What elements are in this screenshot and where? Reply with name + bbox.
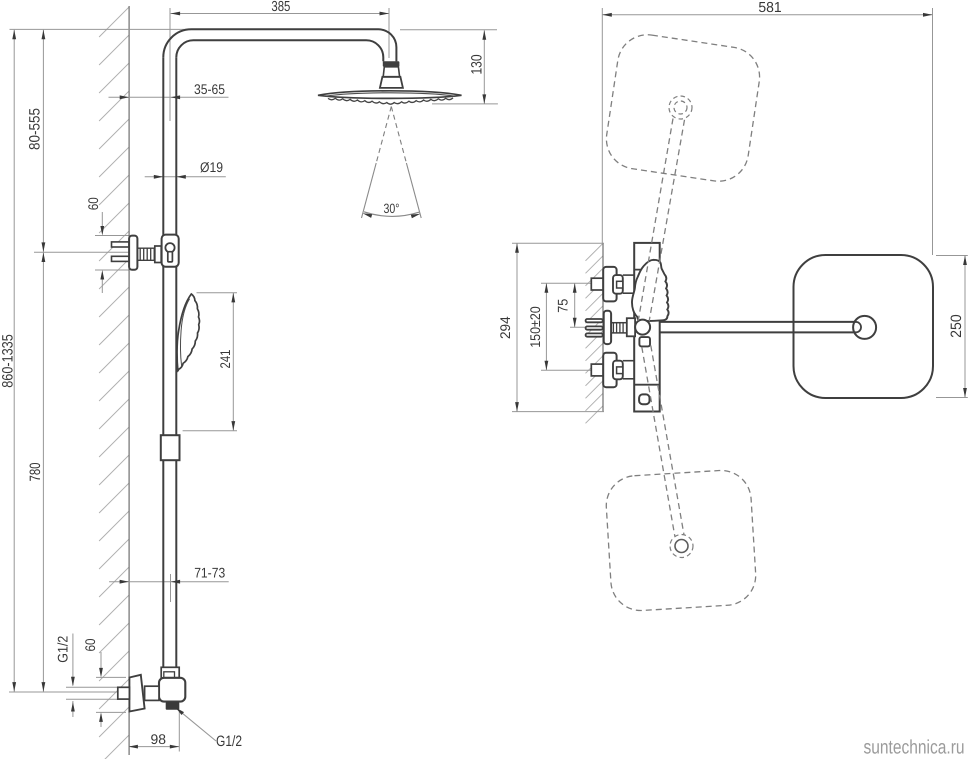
svg-text:60: 60 bbox=[82, 638, 98, 651]
svg-text:30°: 30° bbox=[384, 201, 400, 216]
svg-text:35-65: 35-65 bbox=[194, 81, 225, 97]
svg-text:71-73: 71-73 bbox=[194, 565, 225, 581]
svg-text:98: 98 bbox=[151, 731, 167, 747]
svg-text:241: 241 bbox=[217, 349, 233, 368]
svg-text:581: 581 bbox=[758, 0, 781, 16]
svg-text:G1/2: G1/2 bbox=[216, 733, 242, 750]
svg-text:860-1335: 860-1335 bbox=[0, 334, 16, 388]
svg-text:250: 250 bbox=[948, 314, 965, 338]
svg-text:130: 130 bbox=[469, 55, 486, 75]
svg-text:G1/2: G1/2 bbox=[55, 636, 71, 663]
svg-text:385: 385 bbox=[271, 0, 290, 15]
svg-text:294: 294 bbox=[497, 316, 513, 339]
svg-text:suntechnica.ru: suntechnica.ru bbox=[864, 737, 965, 759]
svg-text:Ø19: Ø19 bbox=[200, 159, 223, 175]
svg-text:150±20: 150±20 bbox=[527, 306, 543, 348]
svg-text:60: 60 bbox=[85, 197, 101, 210]
svg-text:780: 780 bbox=[27, 463, 44, 482]
svg-text:80-555: 80-555 bbox=[27, 108, 44, 150]
svg-text:75: 75 bbox=[555, 299, 571, 313]
